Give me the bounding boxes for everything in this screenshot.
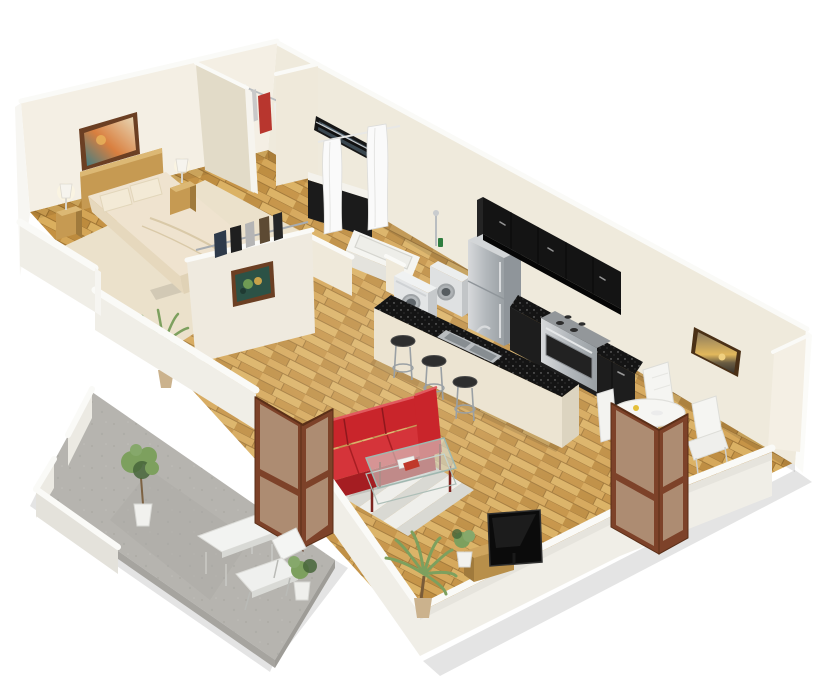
nightstand-left — [56, 206, 82, 240]
patio-folding-door — [255, 397, 333, 551]
floorplan-render-page: 3D isometric cutaway floor plan render o… — [0, 0, 820, 682]
dining-folding-door — [611, 403, 688, 554]
apartment-3d-floorplan: 3D isometric cutaway floor plan render o… — [0, 0, 820, 682]
floorplan-svg: 3D isometric cutaway floor plan render o… — [0, 0, 820, 682]
table-item — [633, 405, 639, 411]
closet-partition-b — [276, 64, 318, 186]
flat-screen-tv — [488, 510, 542, 566]
